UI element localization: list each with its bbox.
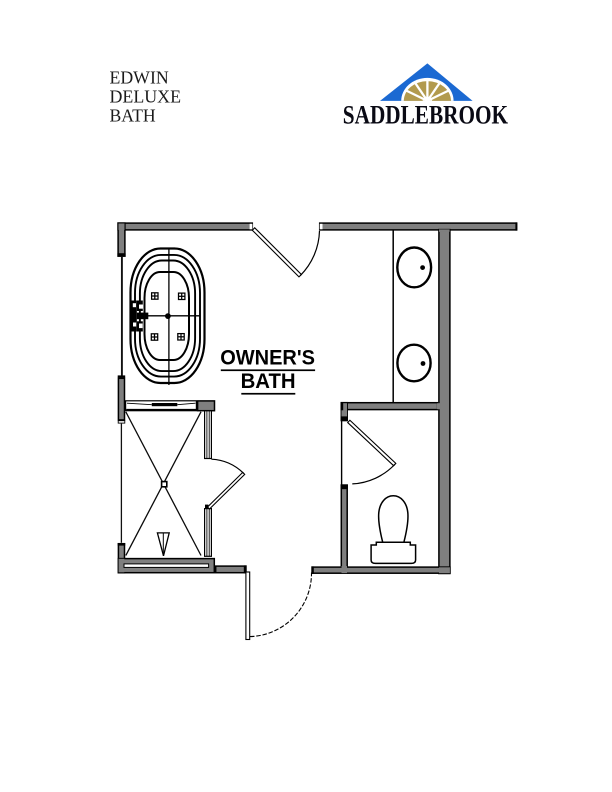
svg-text:BATH: BATH [110,105,156,125]
svg-text:DELUXE: DELUXE [110,87,182,107]
svg-text:SADDLEBROOK: SADDLEBROOK [343,99,509,129]
svg-text:OWNER'S: OWNER'S [220,347,315,370]
svg-text:BATH: BATH [241,370,296,393]
svg-text:EDWIN: EDWIN [110,68,169,88]
